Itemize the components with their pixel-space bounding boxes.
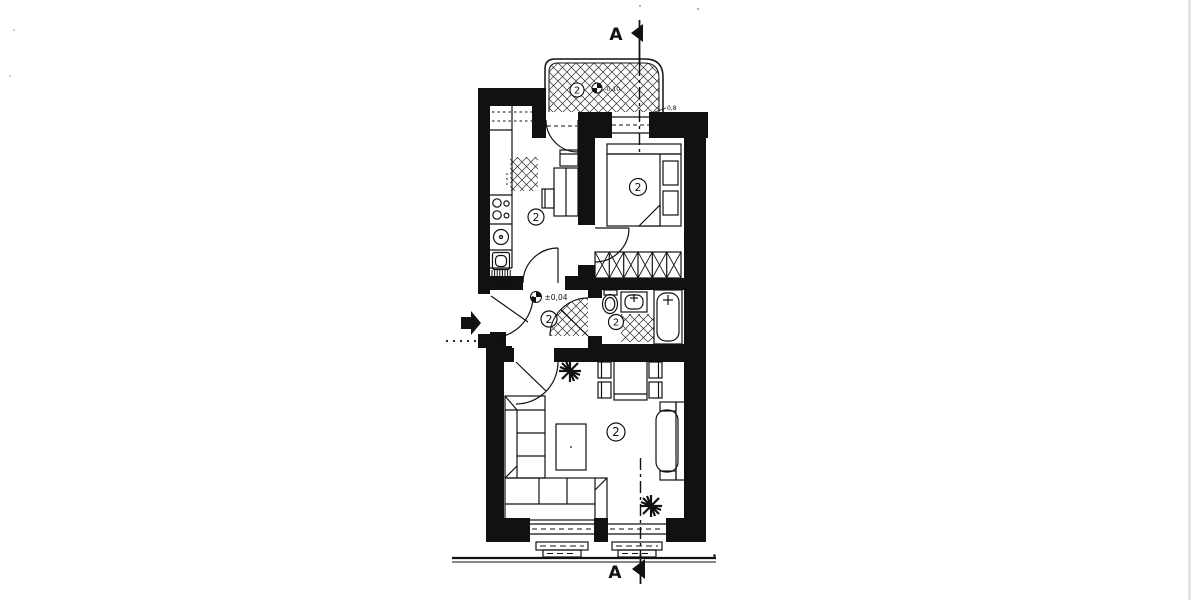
- balcony-level-marker-icon: [592, 83, 602, 93]
- bathroom: 2: [603, 289, 683, 345]
- balcony: 2 -0,10: [545, 59, 663, 114]
- living-room-label-group: 2: [607, 423, 625, 441]
- bedroom: 2: [595, 117, 681, 278]
- bedroom-room-label: 2: [630, 179, 647, 196]
- balcony-level-value: -0,10: [605, 86, 621, 93]
- exterior-ground-line: [452, 554, 716, 562]
- edge-note: 0,8: [667, 105, 677, 112]
- kitchen-tile-patch: [510, 157, 538, 191]
- stove: [493, 199, 509, 219]
- armchair: [656, 402, 686, 480]
- toilet: [603, 290, 618, 314]
- hall-room-label: 2: [541, 311, 557, 327]
- section-flag-icon: [631, 24, 643, 42]
- balcony-room-label: 2: [570, 83, 584, 97]
- wardrobe: [595, 252, 681, 278]
- floorplan-page: 2 -0,10: [0, 0, 1200, 600]
- bathroom-room-label: 2: [609, 315, 624, 330]
- entrance-arrow-icon: [461, 311, 481, 335]
- floorplan-drawing: 2 -0,10: [0, 0, 1200, 600]
- kitchen-label: 2: [533, 211, 540, 224]
- hallway: ±0,04 2: [446, 292, 588, 343]
- kitchen-room-label: 2: [528, 209, 544, 225]
- bath-tile-patch: [621, 314, 654, 342]
- section-mark-bottom: A: [608, 563, 622, 583]
- plant-icon: [640, 495, 662, 517]
- kitchen-table-set: [542, 150, 578, 216]
- hall-level-value: ±0,04: [545, 293, 568, 302]
- plant-icon: [559, 360, 581, 382]
- bathroom-label: 2: [613, 318, 619, 329]
- kitchen-hall-door: [523, 248, 558, 283]
- washbasin: [620, 289, 650, 313]
- kitchen-sink: [494, 230, 509, 245]
- balcony-label: 2: [574, 86, 580, 97]
- living-room-door: [516, 362, 558, 404]
- entrance-door: [491, 296, 533, 338]
- kitchen-appliance: [493, 253, 510, 270]
- living-room-label: 2: [612, 425, 620, 439]
- bedroom-label: 2: [635, 181, 642, 194]
- dining-set: [598, 360, 662, 400]
- bathtub: [654, 290, 682, 344]
- property-dotted-line: [446, 340, 476, 342]
- section-mark-top: A: [609, 25, 623, 45]
